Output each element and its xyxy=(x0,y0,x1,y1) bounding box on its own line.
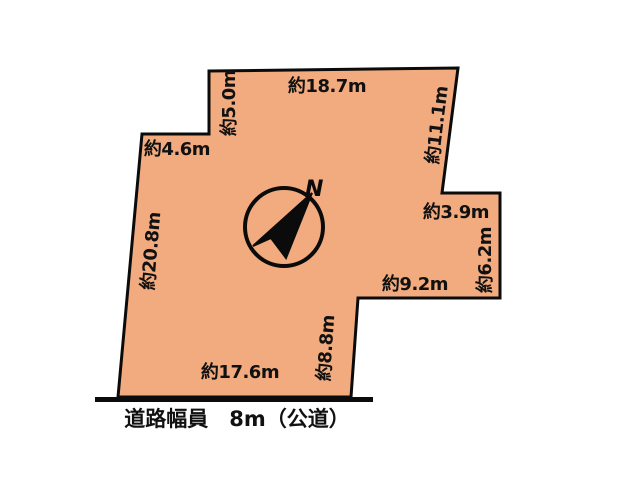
land-plot-diagram: N 約18.7m 約5.0m 約4.6m 約11.1m 約20.8m 約3.9m… xyxy=(0,0,640,480)
dim-label-right-step-top: 約3.9m xyxy=(423,198,489,224)
dim-label-top-left-side: 約5.0m xyxy=(215,70,241,136)
compass-north-label: N xyxy=(305,177,323,202)
dim-label-lower-step-top: 約9.2m xyxy=(382,270,448,296)
dim-label-bottom: 約17.6m xyxy=(201,358,279,384)
dim-label-lower-inner-side: 約8.8m xyxy=(310,314,341,382)
dim-label-upper-left-step: 約4.6m xyxy=(144,135,210,161)
dim-label-right-step-side: 約6.2m xyxy=(471,227,497,293)
dim-label-top: 約18.7m xyxy=(288,72,366,98)
road-width-caption: 道路幅員 8m（公道） xyxy=(124,403,350,433)
